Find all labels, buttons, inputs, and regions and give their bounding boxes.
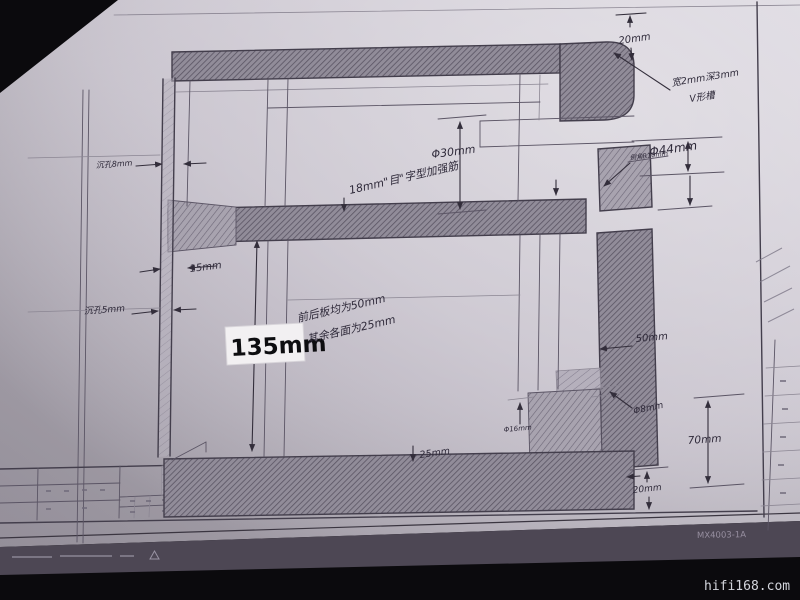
- right-wall-lower: [597, 229, 658, 469]
- sheet-code-label: MX4003-1A: [697, 530, 746, 541]
- blueprint-svg: MX4003-1A: [0, 0, 800, 600]
- tiny-print-line: [120, 555, 134, 557]
- tiny-print-line: [12, 556, 52, 558]
- photo-of-hand-drawn-blueprint: MX4003-1A: [0, 0, 800, 600]
- top-right-corner-block: [560, 42, 634, 121]
- watermark-label: hifi168.com: [704, 579, 790, 594]
- tiny-print-line: [60, 555, 112, 557]
- dim-70mm-label: 70mm: [687, 433, 722, 447]
